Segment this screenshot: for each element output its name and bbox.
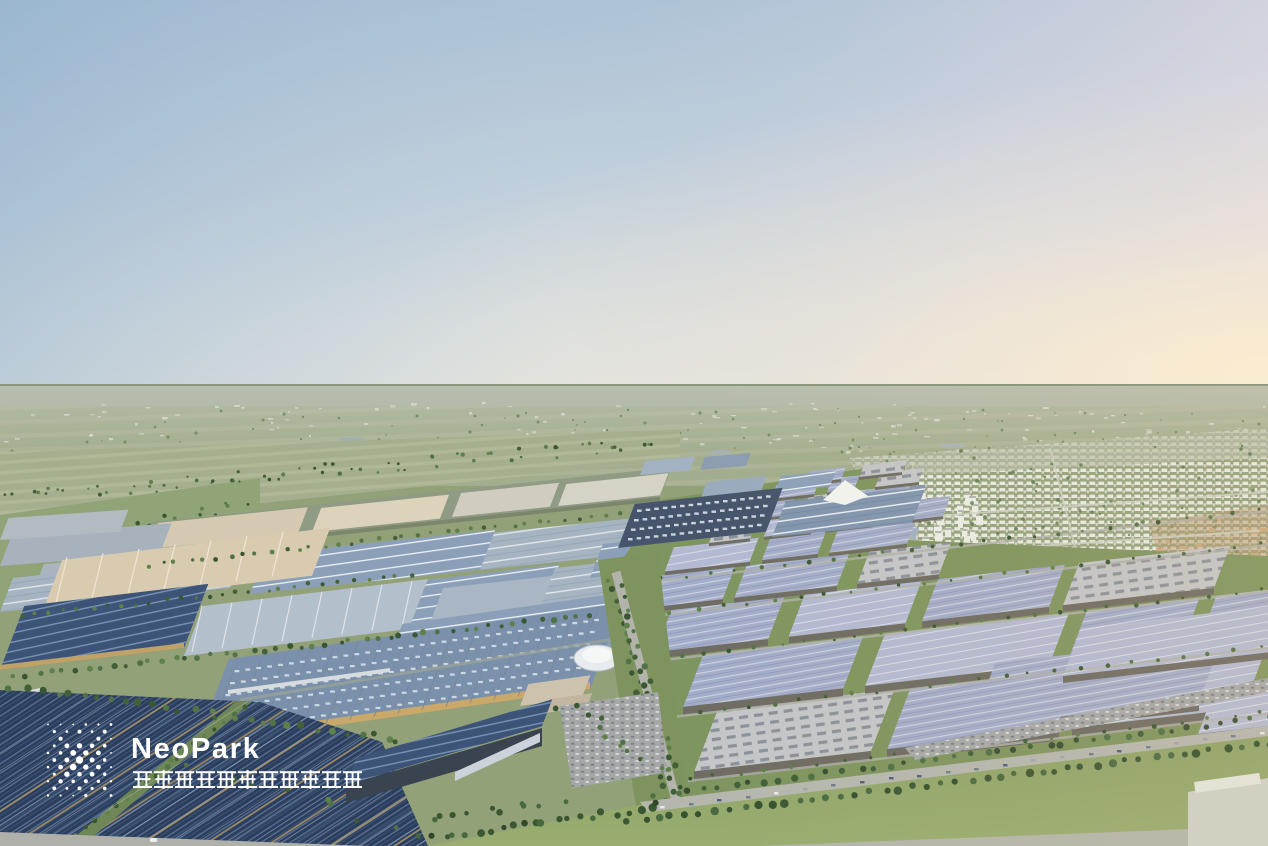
- svg-text:NeoPark: NeoPark: [131, 733, 261, 765]
